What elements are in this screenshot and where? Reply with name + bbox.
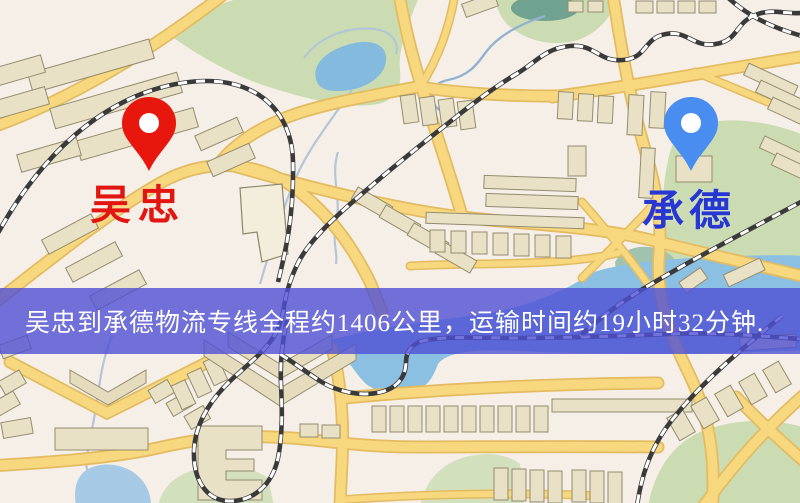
- e-shaped-building: [198, 426, 262, 500]
- map-image: 吴忠 承德 吴忠到承德物流专线全程约1406公里，运输时间约19小时32分钟.: [0, 0, 800, 503]
- route-banner: 吴忠到承德物流专线全程约1406公里，运输时间约19小时32分钟.: [0, 288, 800, 354]
- destination-label: 承德: [642, 177, 736, 238]
- origin-label: 吴忠: [90, 171, 186, 231]
- destination-pin-icon: [662, 97, 720, 173]
- route-banner-text: 吴忠到承德物流专线全程约1406公里，运输时间约19小时32分钟.: [0, 303, 764, 339]
- map-canvas: [0, 0, 800, 503]
- destination-marker: [662, 97, 720, 173]
- origin-pin-icon: [120, 97, 178, 173]
- origin-marker: [120, 97, 178, 173]
